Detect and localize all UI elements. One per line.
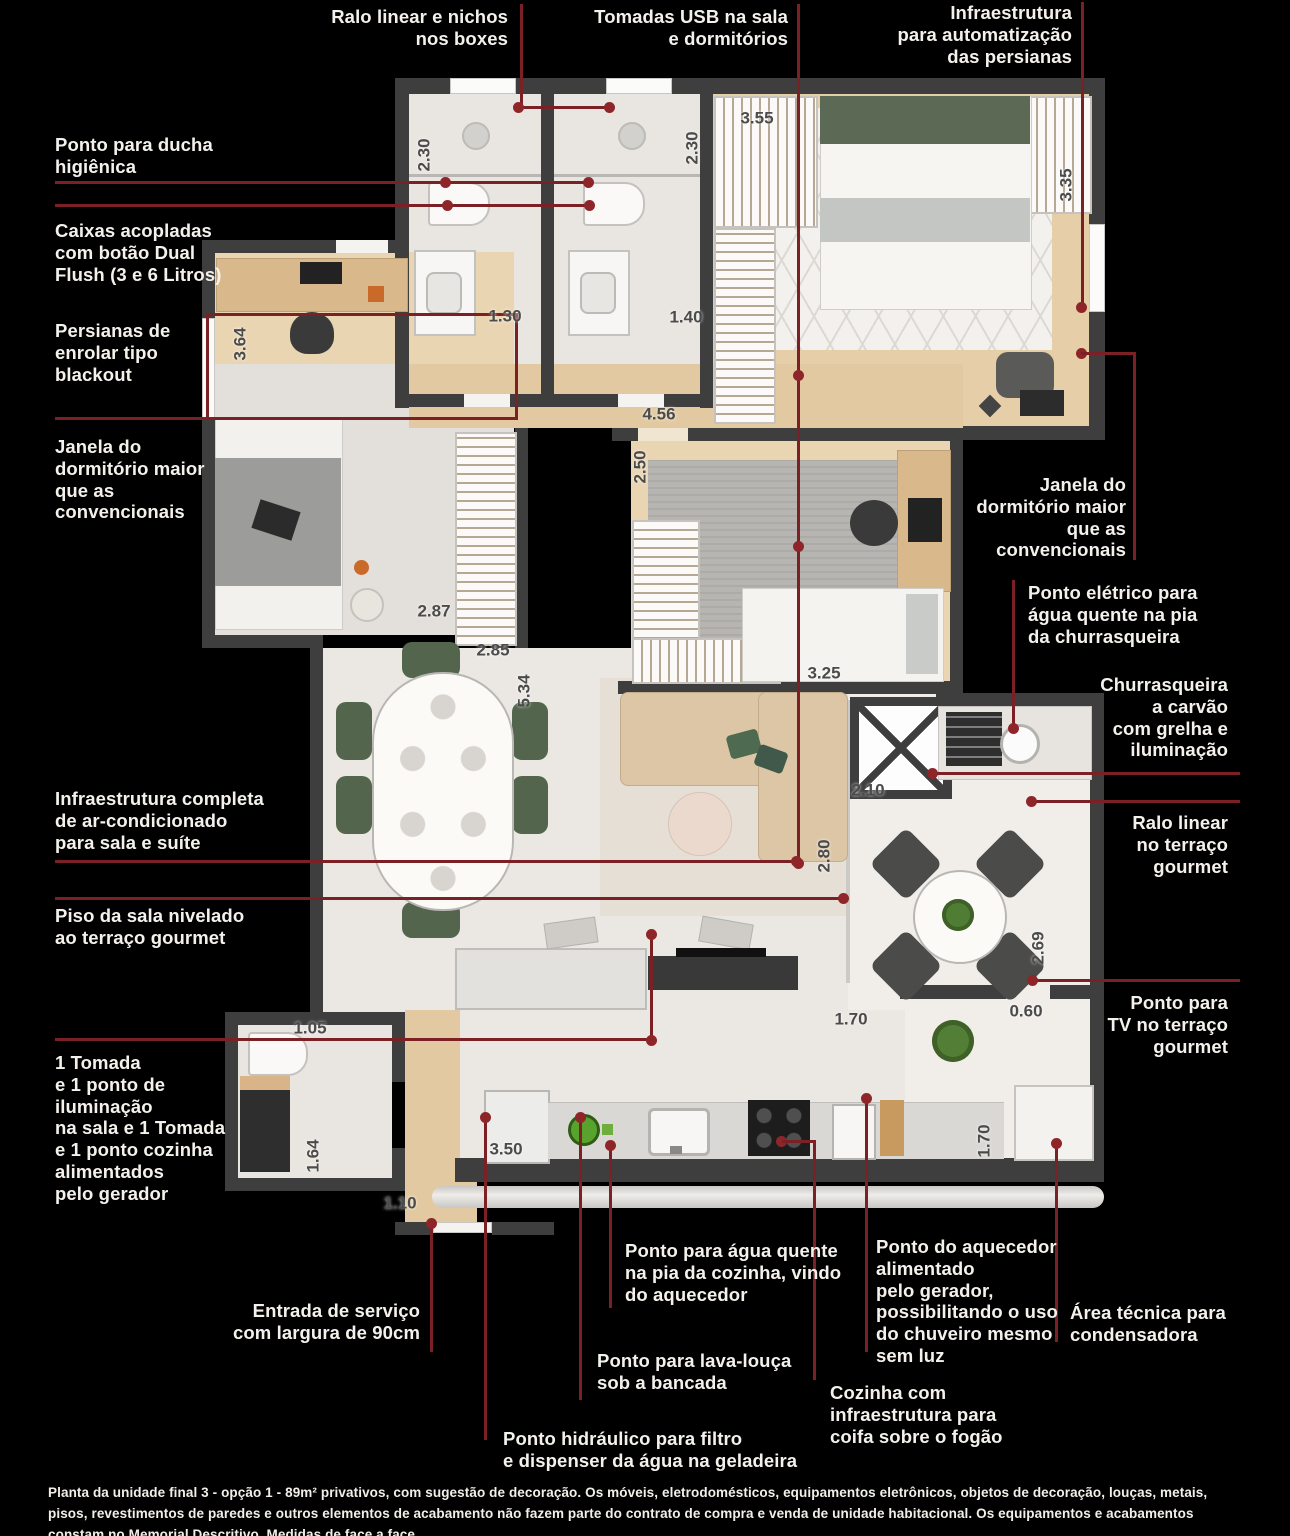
office-deco2 [354, 560, 369, 575]
label-area-tecnica: Área técnica para condensadora [1070, 1302, 1226, 1346]
dot-churrasqueira [927, 768, 938, 779]
shower2-head-icon [618, 122, 646, 150]
measurement-bedroom2-depth: 2.50 [632, 450, 649, 483]
line-gerador-h [55, 1038, 653, 1041]
measurement-bath2-depth: 2.30 [684, 131, 701, 164]
terrace-table-plant [942, 899, 974, 931]
wall-bath-divider [541, 94, 554, 394]
line-ducha-h [55, 181, 591, 184]
label-janela-direita: Janela do dormitório maior que as conven… [976, 474, 1126, 561]
dot-lava-louca [575, 1112, 586, 1123]
dot-ponto-tv [1027, 975, 1038, 986]
label-ponto-eletrico: Ponto elétrico para água quente na pia d… [1028, 582, 1197, 647]
bedroom2-monitor [908, 498, 942, 542]
label-tomadas-usb: Tomadas USB na sala e dormitórios [594, 6, 788, 50]
dot-agua-quente [605, 1140, 616, 1151]
tv-sideboard [648, 956, 798, 990]
measurement-office-width: 2.87 [417, 603, 450, 620]
label-ponto-aquecedor: Ponto do aquecedor alimentado pelo gerad… [876, 1236, 1058, 1367]
dot-automatizacao [1076, 302, 1087, 313]
label-agua-quente: Ponto para água quente na pia da cozinha… [625, 1240, 841, 1305]
label-ponto-tv: Ponto para TV no terraço gourmet [1107, 992, 1228, 1057]
measurement-bath2-width: 1.40 [669, 309, 702, 326]
dot-entrada-servico [426, 1218, 437, 1229]
line-aquecedor-v [865, 1097, 868, 1352]
dishwasher-point [602, 1124, 613, 1135]
line-ralo-boxes-h [517, 106, 613, 109]
line-gerador-v [650, 933, 653, 1041]
measurement-hall-width: 4.56 [642, 406, 675, 423]
line-ar-condicionado-h [55, 860, 796, 863]
line-piso-sala-h [55, 897, 843, 900]
dot-ducha2 [583, 177, 594, 188]
measurement-service-entry: 1.10 [383, 1195, 416, 1212]
measurement-terrace-depth: 2.69 [1030, 931, 1047, 964]
sink1-basin [426, 272, 462, 314]
office-deco-orange [368, 286, 384, 302]
label-churrasqueira: Churrasqueira a carvão com grelha e ilum… [1100, 674, 1228, 761]
dining-table [372, 672, 514, 911]
suite-bed-blanket [820, 198, 1030, 242]
line-agua-quente-v [609, 1144, 612, 1308]
measurement-sbath-width: 1.05 [293, 1020, 326, 1037]
line-ralo-boxes-v [520, 4, 523, 108]
dot-ralo-terraco [1026, 796, 1037, 807]
measurement-living-width: 2.80 [816, 839, 833, 872]
kitchen-island [455, 948, 647, 1010]
churrasqueira-grill [946, 712, 1002, 766]
suite-right-window [1089, 224, 1105, 312]
measurement-suite-width: 3.55 [740, 110, 773, 127]
label-ponto-hidraulico: Ponto hidráulico para filtro e dispenser… [503, 1428, 797, 1472]
label-caixas-acopladas: Caixas acopladas com botão Dual Flush (3… [55, 220, 221, 285]
terrace-plant [932, 1020, 974, 1062]
office-closet [455, 432, 517, 646]
measurement-suite-depth: 3.35 [1058, 168, 1075, 201]
measurement-bath1-depth: 2.30 [416, 138, 433, 171]
bathroom1-window [450, 78, 516, 94]
label-entrada-servico: Entrada de serviço com largura de 90cm [233, 1300, 420, 1344]
line-janela-direita-h [1081, 352, 1136, 355]
label-piso-sala: Piso da sala nivelado ao terraço gourmet [55, 905, 244, 949]
wall-service-bottom-right [492, 1222, 554, 1235]
dot-geladeira [480, 1112, 491, 1123]
line-lava-louca-v [579, 1116, 582, 1400]
entry-door [336, 240, 388, 253]
measurement-office-depth: 3.64 [232, 327, 249, 360]
footer-disclaimer: Planta da unidade final 3 - opção 1 - 89… [48, 1483, 1248, 1536]
dot-gerador-sala [646, 929, 657, 940]
line-churrasqueira-h [932, 772, 1240, 775]
label-infra-persianas: Infraestrutura para automatização das pe… [897, 2, 1072, 67]
dot-ducha1 [440, 177, 451, 188]
label-infra-ar: Infraestrutura completa de ar-condiciona… [55, 788, 264, 853]
wall-sbath-right-upper [392, 1012, 405, 1082]
bathroom2-window [606, 78, 672, 94]
measurement-kitchen-terrace: 1.70 [834, 1011, 867, 1028]
churrasqueira-sink [1000, 724, 1040, 764]
sink2-basin [580, 272, 616, 314]
suite-tv-bench [1020, 390, 1064, 416]
dining-chair-left2 [336, 776, 372, 834]
dot-area-tecnica [1051, 1138, 1062, 1149]
label-lava-louca: Ponto para lava-louça sob a bancada [597, 1350, 791, 1394]
wall-sbath-bottom [225, 1178, 405, 1191]
dot-usb-bedroom2 [793, 541, 804, 552]
line-geladeira-v [484, 1116, 487, 1440]
terrace-bench [1014, 1085, 1094, 1161]
measurement-terrace-bench: 1.70 [976, 1124, 993, 1157]
line-ponto-tv-h [1032, 979, 1240, 982]
line-ralo-terraco-h [1031, 800, 1240, 803]
wall-sbath-right-lower [392, 1148, 405, 1191]
dot-caixa1 [442, 200, 453, 211]
wall-bath-right [700, 94, 713, 408]
shower2-glass [554, 174, 700, 177]
label-ralo-boxes: Ralo linear e nichos nos boxes [331, 6, 508, 50]
measurement-terrace-gap: 0.60 [1009, 1003, 1042, 1020]
line-caixas-h [55, 204, 591, 207]
dot-ar-condicionado [791, 856, 802, 867]
office-nightstand [350, 588, 384, 622]
measurement-kitchen-width: 3.50 [489, 1141, 522, 1158]
pouf [668, 792, 732, 856]
box-persianas [206, 313, 518, 420]
kitchen-duct [432, 1186, 1104, 1208]
cutting-board [880, 1100, 904, 1156]
bedroom2-door [638, 428, 688, 441]
line-ponto-eletrico-v [1012, 580, 1015, 728]
dining-chair-right2 [512, 776, 548, 834]
label-tomada-gerador: 1 Tomada e 1 ponto de iluminação na sala… [55, 1052, 225, 1205]
label-ponto-ducha: Ponto para ducha higiênica [55, 134, 213, 178]
shower1-glass [409, 174, 541, 177]
line-automatizacao-v [1081, 2, 1084, 308]
wall-kitchen-bottom [455, 1158, 1104, 1182]
measurement-bedroom2-width: 3.25 [807, 665, 840, 682]
line-entrada-servico-v [430, 1222, 433, 1352]
dot-ponto-eletrico [1008, 723, 1019, 734]
measurement-dining-width: 2.85 [476, 642, 509, 659]
kitchen-faucet [670, 1146, 682, 1154]
wall-suite-bottom [963, 426, 1089, 440]
bedroom2-chair [850, 500, 898, 546]
floor-plan-page: Ralo linear e nichos nos boxes Tomadas U… [0, 0, 1290, 1536]
measurement-living-depth: 5.34 [516, 674, 533, 707]
tv-screen [676, 948, 766, 957]
line-tomadas-usb-v [797, 4, 800, 866]
measurement-bath1-width: 1.30 [488, 308, 521, 325]
dot-ralo-box2 [604, 102, 615, 113]
dot-ralo-box1 [513, 102, 524, 113]
label-ralo-terraco: Ralo linear no terraço gourmet [1132, 812, 1228, 877]
suite-closet-column [714, 228, 776, 424]
measurement-sbath-depth: 1.64 [305, 1139, 322, 1172]
kitchen-sink2 [832, 1104, 876, 1160]
shower1-head-icon [462, 122, 490, 150]
dining-chair-right1 [512, 702, 548, 760]
dot-aquecedor [861, 1093, 872, 1104]
bedroom2-bed-pillows [906, 594, 938, 674]
office-monitor [300, 262, 342, 284]
wall-office-bottom [202, 635, 321, 648]
cooktop [748, 1100, 810, 1156]
dot-caixa2 [584, 200, 595, 211]
suite-bed-pillows [820, 96, 1030, 144]
sofa-chaise [758, 692, 848, 862]
dot-usb-suite [793, 370, 804, 381]
measurement-terrace-top: 2.10 [851, 782, 884, 799]
service-cabinet [240, 1090, 290, 1172]
label-persianas-blackout: Persianas de enrolar tipo blackout [55, 320, 170, 385]
dot-gerador-cozinha [646, 1035, 657, 1046]
wall-bedroom2-right [950, 428, 963, 694]
label-janela-esquerda: Janela do dormitório maior que as conven… [55, 436, 205, 523]
service-shelf [240, 1076, 290, 1090]
label-cozinha-coifa: Cozinha com infraestrutura para coifa so… [830, 1382, 1003, 1447]
dining-chair-left1 [336, 702, 372, 760]
wall-living-left [310, 635, 323, 1015]
line-coifa-h [782, 1140, 816, 1143]
dot-piso-sala [838, 893, 849, 904]
line-janela-direita-v [1133, 352, 1136, 560]
